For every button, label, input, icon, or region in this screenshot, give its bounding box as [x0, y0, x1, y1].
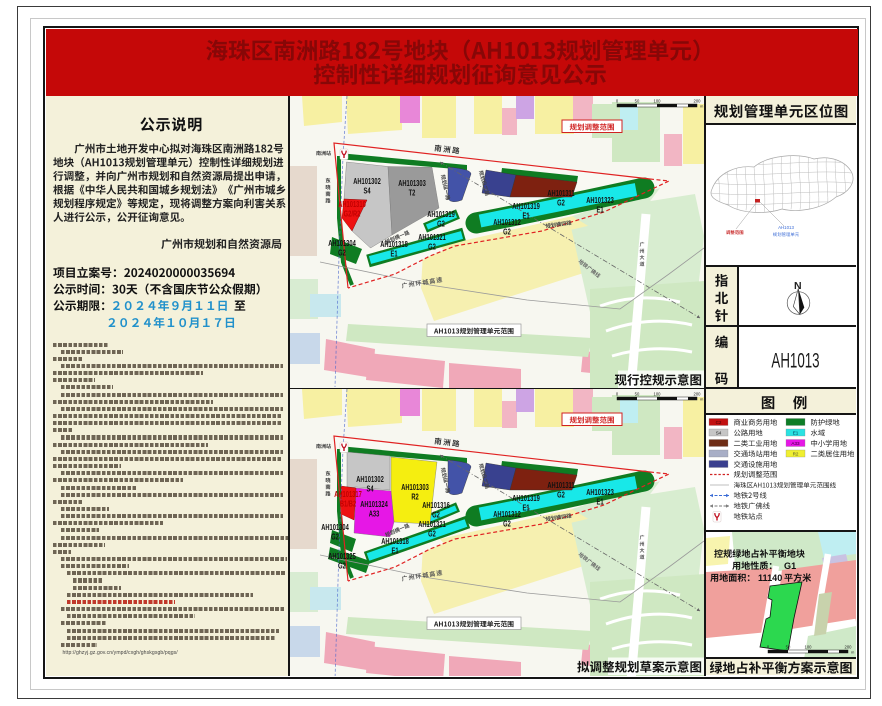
- svg-text:AH101319: AH101319: [427, 211, 455, 219]
- svg-text:G2: G2: [428, 531, 436, 539]
- svg-text:50: 50: [635, 392, 640, 397]
- svg-text:100: 100: [654, 392, 662, 397]
- svg-text:A33: A33: [369, 511, 380, 519]
- svg-text:G2: G2: [331, 534, 339, 542]
- svg-text:AH101302: AH101302: [353, 178, 381, 186]
- svg-text:50: 50: [786, 644, 791, 649]
- svg-text:G1: G1: [784, 561, 796, 571]
- svg-text:G2: G2: [338, 250, 346, 258]
- svg-text:AH101311: AH101311: [547, 190, 574, 198]
- svg-text:AH1013: AH1013: [778, 225, 794, 230]
- svg-text:AH101311: AH101311: [547, 482, 574, 490]
- svg-text:S4: S4: [366, 486, 373, 494]
- svg-text:AH101304: AH101304: [328, 240, 356, 248]
- svg-text:E1: E1: [596, 207, 603, 215]
- svg-text:AH101304: AH101304: [321, 524, 349, 532]
- svg-text:AH101323: AH101323: [586, 197, 614, 205]
- svg-text:AH101319: AH101319: [512, 495, 540, 503]
- svg-text:G2: G2: [432, 512, 440, 520]
- svg-text:100: 100: [805, 644, 813, 649]
- svg-text:AH101310: AH101310: [338, 201, 366, 209]
- svg-text:E1: E1: [596, 499, 603, 507]
- svg-text:G2: G2: [503, 521, 511, 529]
- svg-text:AH101324: AH101324: [360, 501, 388, 509]
- svg-text:G2: G2: [437, 221, 445, 229]
- svg-text:T2: T2: [409, 190, 416, 198]
- svg-text:G2: G2: [428, 244, 436, 252]
- svg-text:B1/B2: B1/B2: [340, 501, 356, 509]
- svg-text:AH101317: AH101317: [334, 491, 362, 499]
- svg-text:C2: C2: [716, 420, 722, 425]
- svg-text:E1: E1: [522, 505, 529, 513]
- svg-text:AH101303: AH101303: [401, 484, 429, 492]
- svg-text:E1: E1: [793, 430, 799, 435]
- svg-text:AH101312: AH101312: [493, 511, 521, 519]
- svg-text:G2: G2: [503, 229, 511, 237]
- svg-text:AH101316: AH101316: [422, 502, 450, 510]
- svg-text:AH1013: AH1013: [771, 348, 819, 372]
- svg-text:G2/R2: G2/R2: [344, 211, 361, 219]
- svg-text:AH101323: AH101323: [586, 489, 614, 497]
- svg-text:AH101312: AH101312: [493, 219, 521, 227]
- svg-text:AH101325: AH101325: [328, 553, 356, 561]
- svg-text:G2: G2: [338, 563, 346, 571]
- svg-text:AH101302: AH101302: [356, 476, 384, 484]
- svg-text:R2: R2: [793, 451, 799, 456]
- svg-text:AH101318: AH101318: [380, 241, 408, 249]
- svg-text:E1: E1: [391, 548, 398, 556]
- svg-text:50: 50: [635, 99, 640, 104]
- svg-text:AH101318: AH101318: [381, 538, 409, 546]
- svg-text:E1: E1: [522, 213, 529, 221]
- svg-text:S4: S4: [716, 430, 722, 435]
- svg-text:A33: A33: [791, 441, 800, 446]
- svg-text:100: 100: [654, 99, 662, 104]
- svg-text:AH101319: AH101319: [512, 203, 540, 211]
- svg-text:E1: E1: [390, 251, 397, 259]
- svg-text:S4: S4: [363, 188, 370, 196]
- svg-text:G2: G2: [557, 200, 565, 208]
- svg-text:R2: R2: [411, 494, 418, 502]
- svg-text:11140: 11140: [758, 573, 782, 583]
- svg-text:G2: G2: [557, 492, 565, 500]
- svg-text:AH101321: AH101321: [418, 521, 446, 529]
- svg-text:AH101303: AH101303: [398, 180, 426, 188]
- svg-text:AH101321: AH101321: [418, 234, 446, 242]
